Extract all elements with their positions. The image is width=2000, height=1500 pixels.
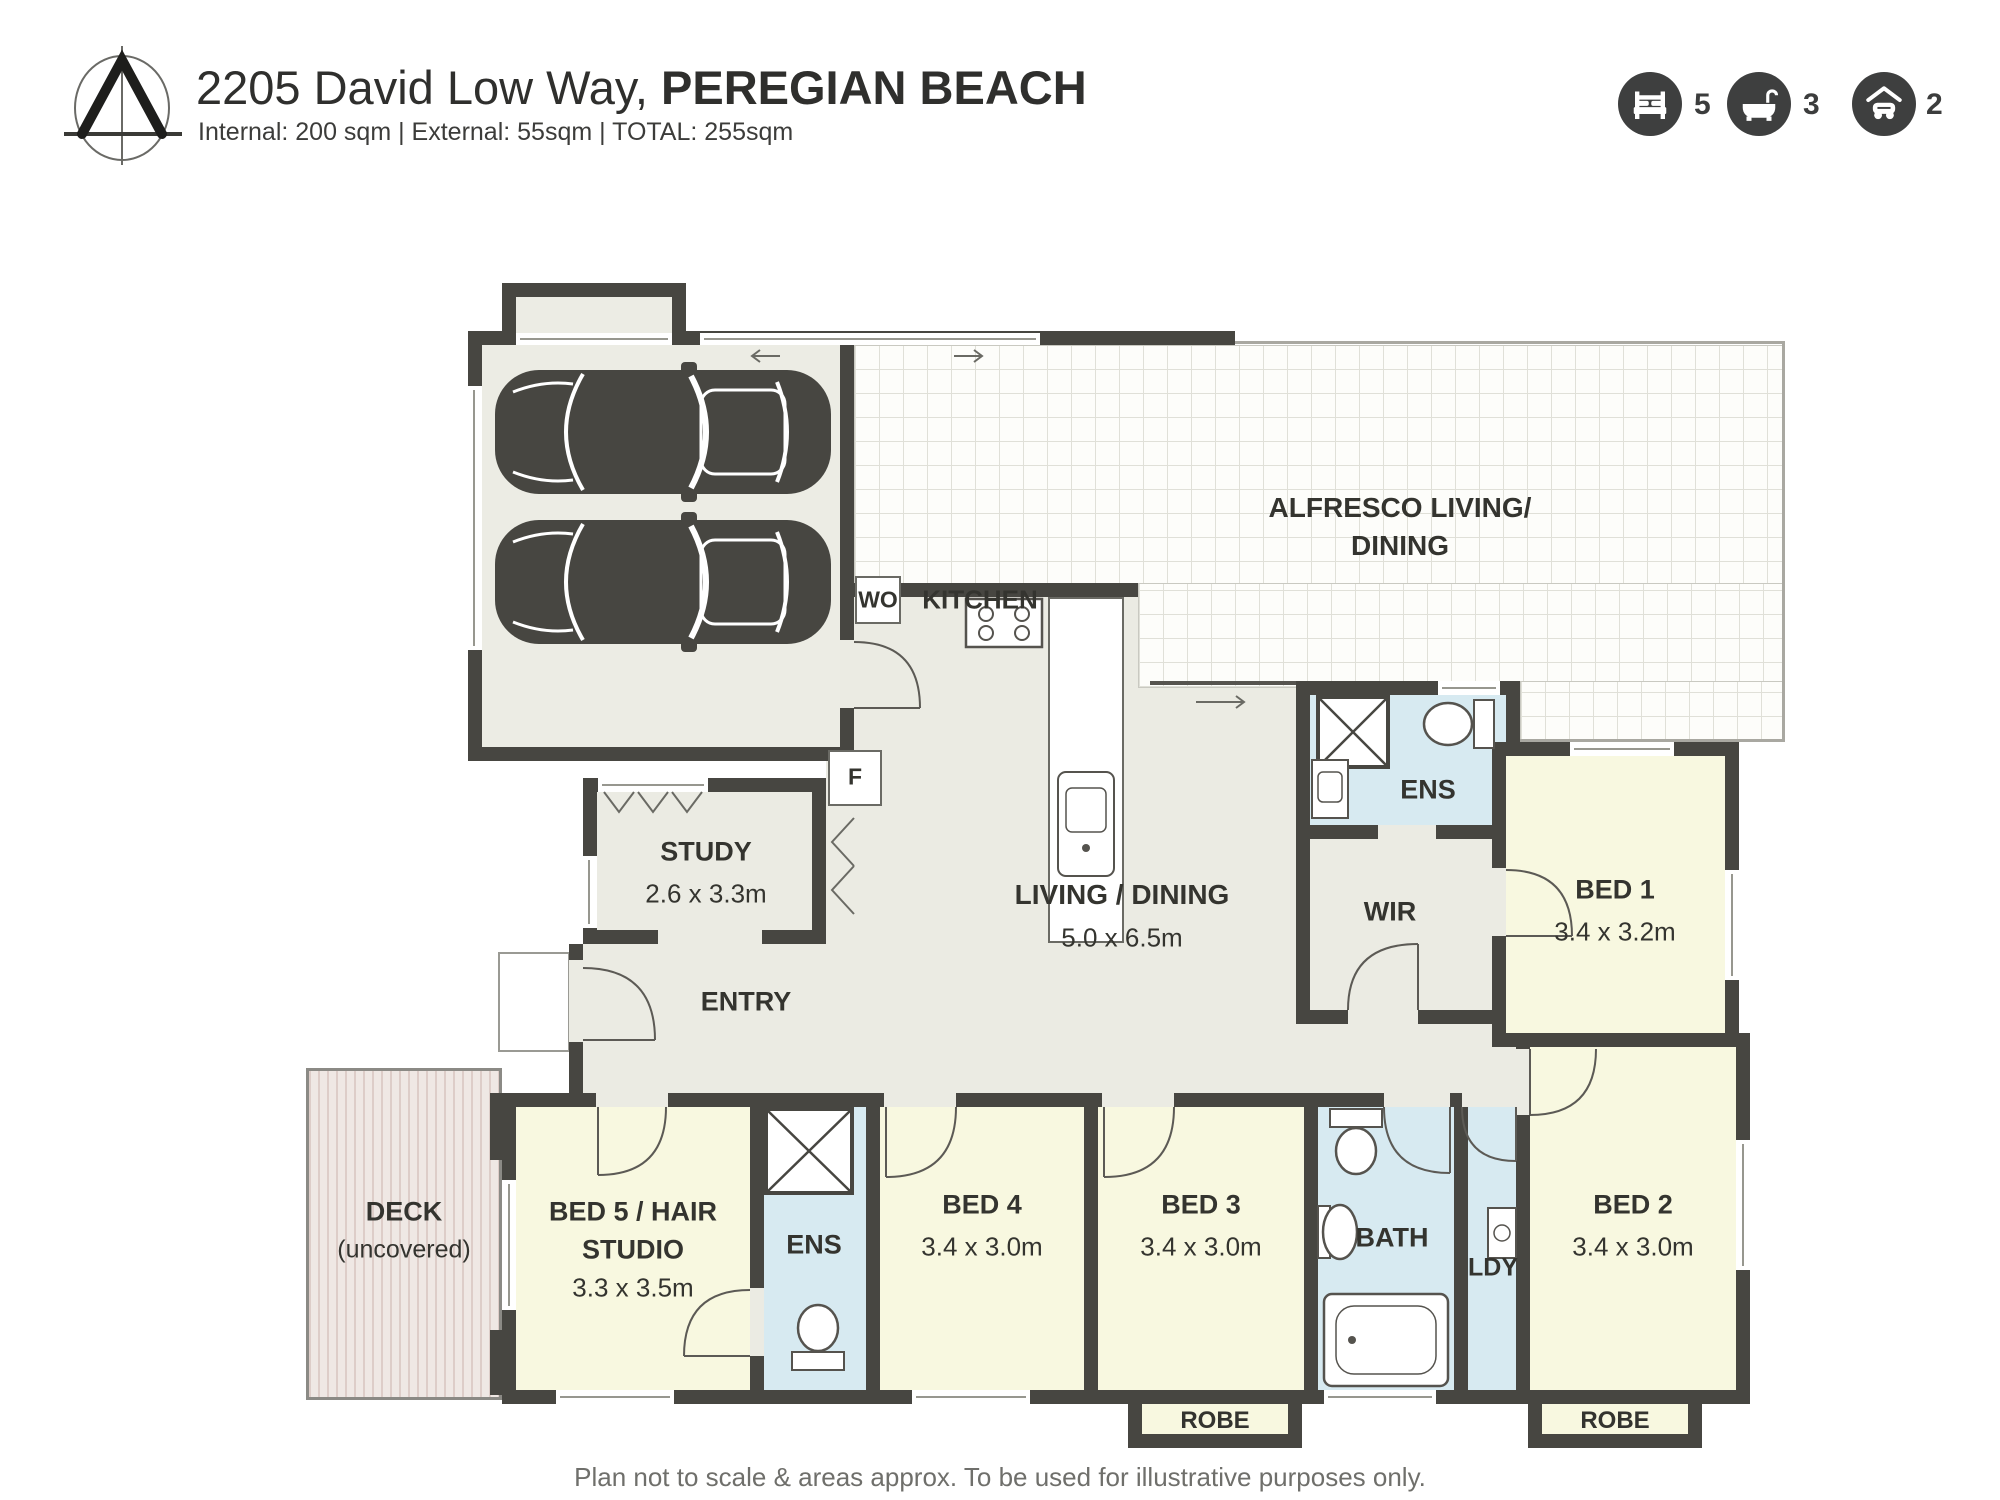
gap-wir-door [1348,1010,1418,1024]
label-living: LIVING / DINING [1015,879,1230,911]
deck-wall-stub-bottom [490,1330,516,1395]
label-bath: BATH [1356,1223,1429,1254]
gap-bed1-door [1492,868,1506,936]
alfresco-edge-north [1235,341,1785,344]
gap-ens5-door [750,1288,764,1356]
window-bed2-east [1736,1140,1750,1270]
label-bed5-dims: 3.3 x 3.5m [572,1273,693,1304]
car-icon [1863,83,1905,125]
window-study-north [598,778,708,792]
label-bed1-dims: 3.4 x 3.2m [1554,917,1675,948]
window-garage-west [466,386,482,650]
window-bed5-south [556,1390,674,1404]
gap-wir-ens [1378,825,1436,839]
window-bed1-east [1725,870,1739,980]
label-robe-bed2: ROBE [1580,1407,1649,1435]
label-bed2: BED 2 [1593,1190,1673,1221]
label-bed5-1: BED 5 / HAIR [549,1197,717,1228]
label-bed5-2: STUDIO [582,1235,684,1266]
car-count: 2 [1926,88,1943,122]
gap-bed4-door [884,1093,956,1107]
gap-bed2-door [1516,1049,1530,1115]
area-summary: Internal: 200 sqm | External: 55sqm | TO… [198,118,793,147]
car-badge [1852,72,1916,136]
floorplan-page: 2205 David Low Way, PEREGIAN BEACH Inter… [0,0,2000,1500]
label-fridge: F [848,764,862,791]
window-garage-bay [516,333,672,345]
label-wir: WIR [1364,897,1416,928]
label-living-dims: 5.0 x 6.5m [1061,923,1182,954]
title-address: 2205 David Low Way, [196,61,661,114]
label-alfresco-1: ALFRESCO LIVING/ [1269,492,1532,524]
room-hall-east [1296,1024,1516,1093]
window-bath-south [1324,1390,1436,1404]
room-alfresco-mid [1138,583,1785,688]
label-deck-1: DECK [366,1197,443,1228]
bed-count: 5 [1694,88,1711,122]
disclaimer-text: Plan not to scale & areas approx. To be … [0,1462,2000,1493]
label-robe-bed3: ROBE [1180,1407,1249,1435]
room-ens-master [1296,681,1520,839]
room-alfresco-right [1520,681,1785,742]
gap-bed3-door [1102,1093,1174,1107]
label-ens-bed5: ENS [786,1230,842,1261]
label-deck-2: (uncovered) [337,1236,470,1265]
label-alfresco-2: DINING [1351,530,1449,562]
gap-bed5-door [596,1093,668,1107]
bed-badge [1618,72,1682,136]
bath-icon [1739,84,1779,124]
label-study-dims: 2.6 x 3.3m [645,879,766,910]
porch [498,952,570,1052]
bath-badge [1727,72,1791,136]
gap-bath-door [1384,1093,1450,1107]
page-title: 2205 David Low Way, PEREGIAN BEACH [196,60,1087,115]
title-suburb: PEREGIAN BEACH [661,61,1087,114]
alfresco-edge-east [1782,341,1785,742]
label-bed3: BED 3 [1161,1190,1241,1221]
label-study: STUDY [660,837,752,868]
bath-count: 3 [1803,88,1820,122]
slider-alfresco [1150,681,1296,685]
label-bed4: BED 4 [942,1190,1022,1221]
label-bed1: BED 1 [1575,875,1655,906]
label-kitchen: KITCHEN [922,585,1038,616]
window-study-west [581,856,597,928]
gap-study-opening [658,930,762,944]
label-ens-master: ENS [1400,775,1456,806]
room-entry [583,944,854,1093]
label-wo: WO [858,587,898,614]
window-bed5-west [502,1180,516,1310]
room-garage [468,331,854,761]
window-bed4-south [912,1390,1030,1404]
label-bed2-dims: 3.4 x 3.0m [1572,1232,1693,1263]
label-bed4-dims: 3.4 x 3.0m [921,1232,1042,1263]
label-bed3-dims: 3.4 x 3.0m [1140,1232,1261,1263]
garage-door-panel [700,333,1040,345]
room-deck [306,1068,502,1400]
label-entry: ENTRY [701,987,792,1018]
gap-garage-door [840,640,854,708]
window-bed1-north [1570,742,1674,756]
compass-icon [50,42,195,167]
gap-entry-door [569,960,583,1042]
label-ldy: LDY [1468,1254,1518,1283]
gap-ldy-door [1462,1093,1518,1107]
bed-icon [1630,84,1670,124]
window-ens-north [1438,681,1500,695]
